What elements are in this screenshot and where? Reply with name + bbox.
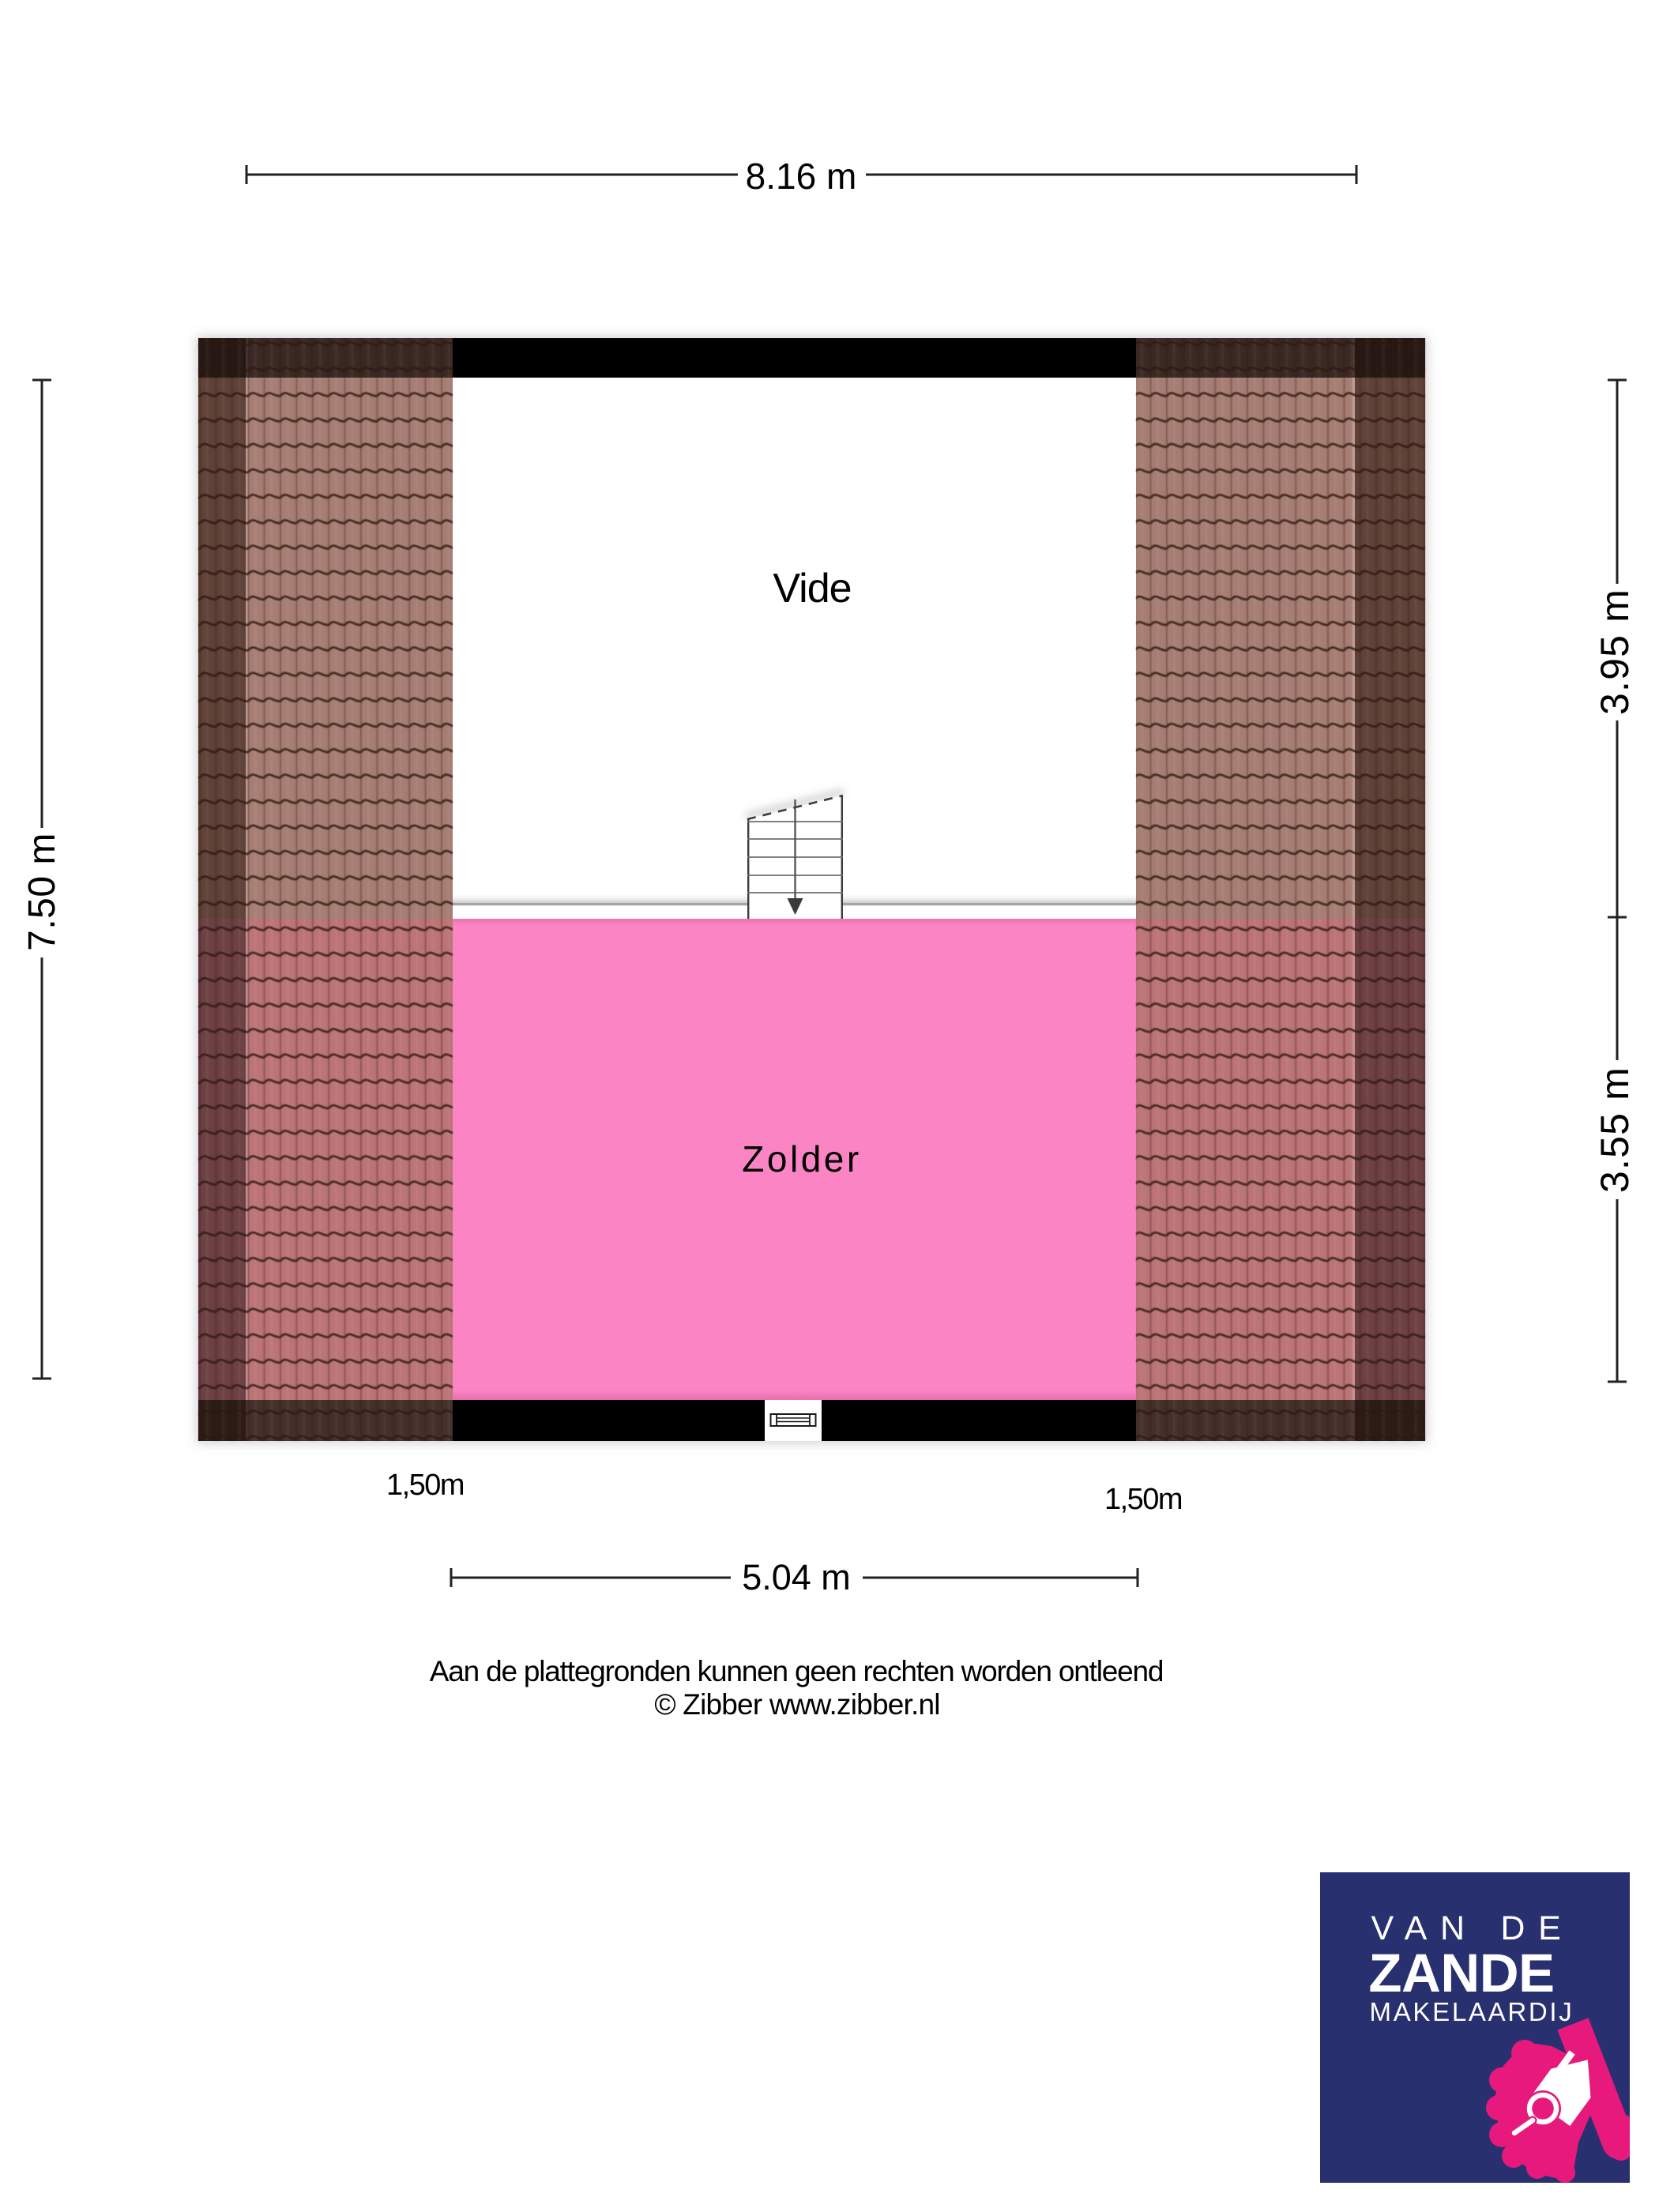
svg-text:7.50 m: 7.50 m — [21, 833, 63, 951]
svg-text:MAKELAARDIJ: MAKELAARDIJ — [1370, 1997, 1574, 2026]
svg-text:Aan de plattegronden kunnen ge: Aan de plattegronden kunnen geen rechten… — [430, 1655, 1163, 1687]
svg-text:3.95 m: 3.95 m — [1593, 589, 1637, 715]
svg-text:1,50m: 1,50m — [1104, 1483, 1182, 1516]
svg-text:© Zibber www.zibber.nl: © Zibber www.zibber.nl — [654, 1688, 939, 1721]
svg-text:5.04 m: 5.04 m — [742, 1557, 851, 1597]
svg-text:1,50m: 1,50m — [386, 1469, 464, 1502]
svg-text:3.55 m: 3.55 m — [1593, 1066, 1637, 1193]
svg-text:Zolder: Zolder — [742, 1138, 861, 1179]
svg-text:Vide: Vide — [773, 566, 851, 611]
svg-text:ZANDE: ZANDE — [1368, 1943, 1554, 2003]
svg-text:8.16 m: 8.16 m — [746, 156, 857, 197]
svg-text:VAN DE: VAN DE — [1371, 1909, 1574, 1947]
